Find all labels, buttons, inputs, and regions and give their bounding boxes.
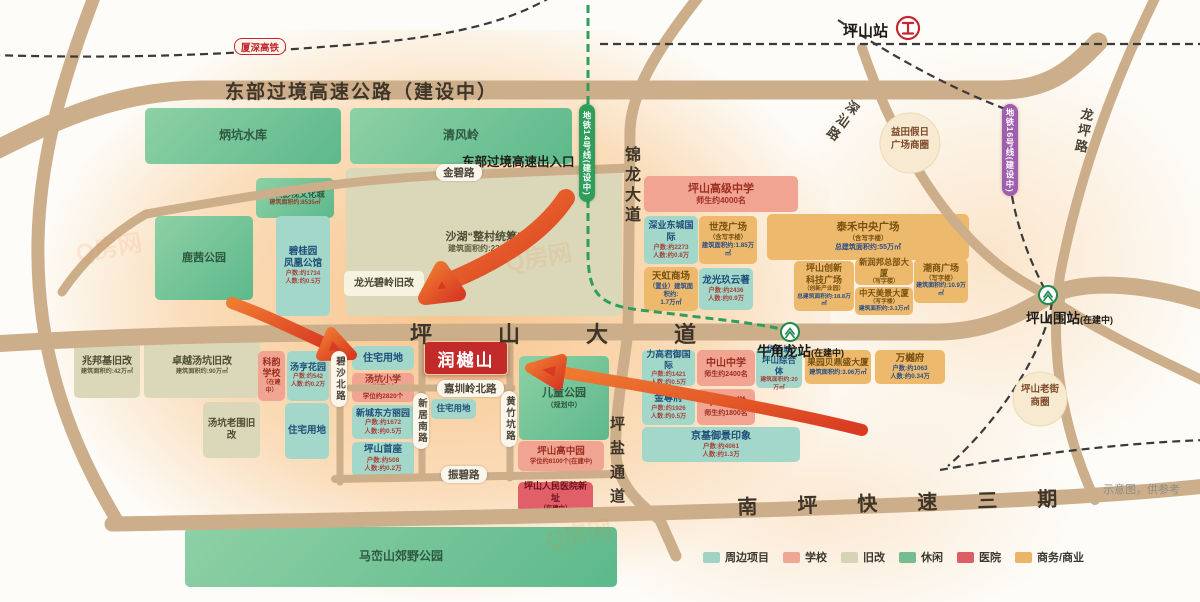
transit-label-m16: 地铁16号线(建设中) bbox=[1002, 104, 1018, 196]
legend-swatch bbox=[1015, 552, 1032, 563]
watermark: Q房网 bbox=[72, 222, 144, 268]
legend-swatch bbox=[783, 552, 800, 563]
road-label-pingyan: 坪盐通道 bbox=[606, 416, 627, 512]
transit-label-m14: 地铁14号线(建设中) bbox=[579, 104, 595, 202]
legend-item: 周边项目 bbox=[703, 549, 769, 565]
labels-layer: 润樾山 示意图，供参考 周边项目学校旧改休闲医院商务/商业 东部过境高速公路（建… bbox=[0, 0, 1200, 602]
legend-item: 旧改 bbox=[841, 549, 885, 565]
legend-item: 医院 bbox=[957, 549, 1001, 565]
legend-item: 休闲 bbox=[899, 549, 943, 565]
station-status: (在建中) bbox=[811, 348, 844, 358]
legend-swatch bbox=[957, 552, 974, 563]
road-label-hzk: 黄竹坑路 bbox=[501, 391, 517, 447]
watermark: Q房网 bbox=[502, 232, 574, 278]
legend-label: 休闲 bbox=[921, 549, 943, 565]
station-status: (在建中) bbox=[1080, 315, 1113, 325]
road-label-longping: 龙坪路 bbox=[1070, 106, 1097, 157]
legend-item: 商务/商业 bbox=[1015, 549, 1084, 565]
road-label-hw_top: 东部过境高速公路（建设中） bbox=[225, 77, 498, 104]
station-name: 坪山围站 bbox=[1026, 311, 1080, 326]
map-legend: 周边项目学校旧改休闲医院商务/商业 bbox=[703, 549, 1084, 565]
station-name: 坪山站 bbox=[843, 23, 888, 40]
legend-swatch bbox=[841, 552, 858, 563]
road-label-shenshan: 深汕路 bbox=[820, 96, 864, 146]
map-canvas: 炳坑水库清风岭鹿茜公园深圳影视文化城建筑面积约:8535㎡儿童公园（规划中）马峦… bbox=[0, 0, 1200, 602]
disclaimer-text: 示意图，供参考 bbox=[1103, 481, 1180, 497]
road-label-zhenbi: 振碧路 bbox=[441, 466, 487, 483]
road-label-nanping: 南坪快速三期 bbox=[737, 482, 1098, 520]
road-label-bisha: 碧沙北路 bbox=[331, 351, 347, 407]
legend-item: 学校 bbox=[783, 549, 827, 565]
legend-label: 医院 bbox=[979, 549, 1001, 565]
road-label-jinglong: 锦龙大道 bbox=[618, 146, 642, 226]
road-label-xinju: 新居南路 bbox=[413, 393, 429, 449]
legend-label: 旧改 bbox=[863, 549, 885, 565]
transit-label-hsr: 厦深高铁 bbox=[234, 38, 286, 55]
circle-line: 商圈 bbox=[1010, 397, 1070, 410]
legend-label: 周边项目 bbox=[725, 549, 769, 565]
business-circle-laojie: 坪山老街商圈 bbox=[1010, 384, 1070, 410]
legend-swatch bbox=[703, 552, 720, 563]
station-label-pingshan: 坪山站 bbox=[843, 20, 888, 41]
legend-label: 学校 bbox=[805, 549, 827, 565]
legend-label: 商务/商业 bbox=[1037, 549, 1084, 565]
legend-swatch bbox=[899, 552, 916, 563]
road-label-jinbi: 金碧路 bbox=[436, 164, 482, 181]
circle-line: 益田假日 bbox=[878, 127, 942, 140]
station-label-niujiaolong: 牛角龙站(在建中) bbox=[757, 340, 844, 360]
road-label-psdd: 坪山大道 bbox=[410, 317, 762, 349]
circle-line: 广场商圈 bbox=[878, 140, 942, 153]
station-name: 牛角龙站 bbox=[757, 344, 811, 359]
road-label-jzlb: 嘉圳岭北路 bbox=[437, 380, 504, 397]
station-label-pingshanwei: 坪山围站(在建中) bbox=[1026, 307, 1113, 327]
circle-line: 坪山老街 bbox=[1010, 384, 1070, 397]
business-circle-yitian: 益田假日广场商圈 bbox=[878, 127, 942, 153]
watermark: Q房网 bbox=[542, 509, 614, 555]
